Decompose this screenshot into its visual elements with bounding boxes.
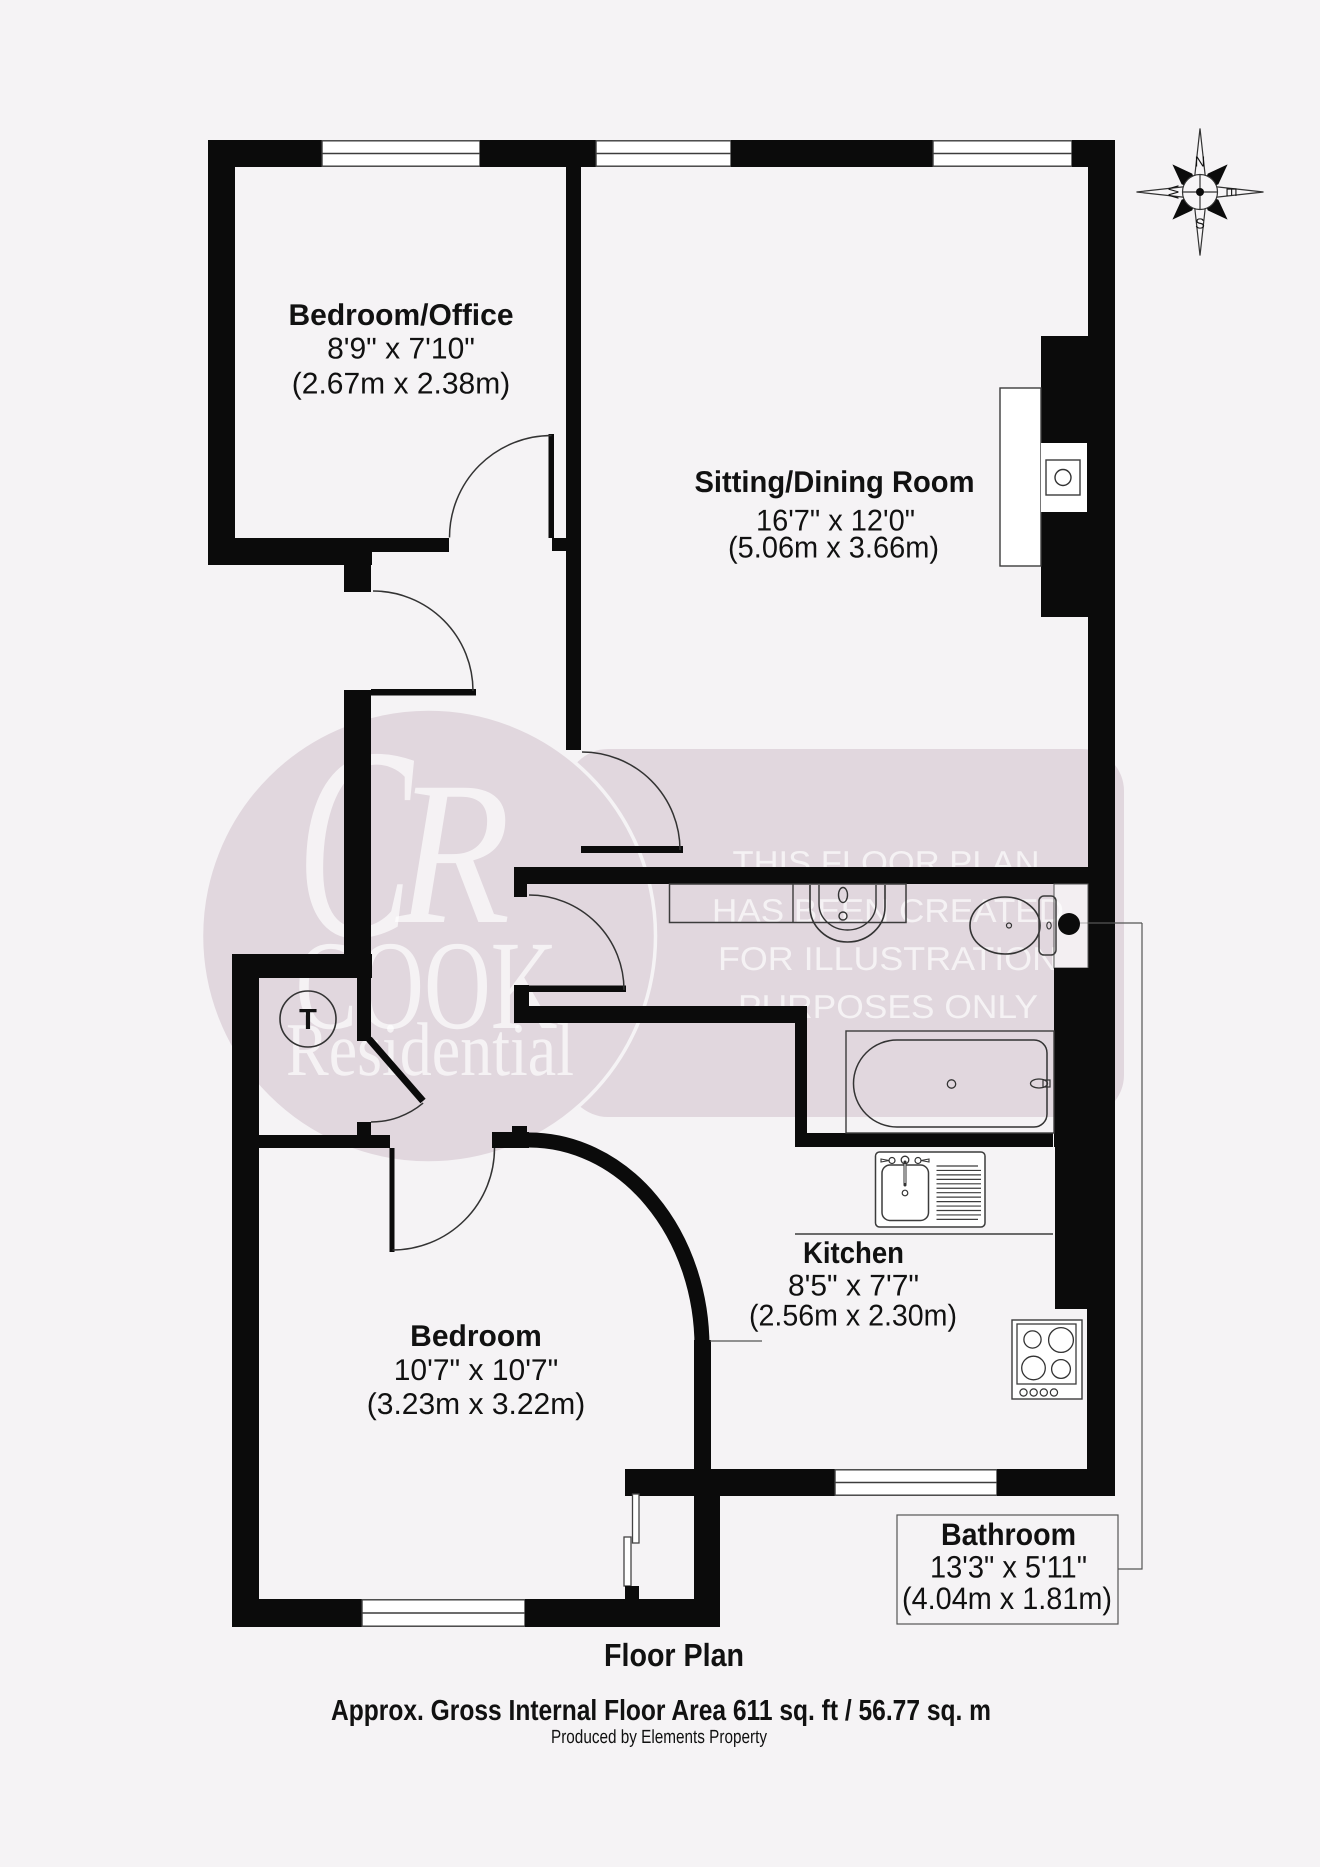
svg-text:Kitchen: Kitchen bbox=[803, 1237, 904, 1270]
svg-text:10'7" x 10'7": 10'7" x 10'7" bbox=[394, 1354, 559, 1387]
svg-text:Produced by Elements Property: Produced by Elements Property bbox=[551, 1727, 767, 1748]
svg-text:(2.67m x 2.38m): (2.67m x 2.38m) bbox=[292, 368, 510, 401]
svg-text:FOR ILLUSTRATION: FOR ILLUSTRATION bbox=[718, 940, 1058, 977]
svg-text:8'5" x 7'7": 8'5" x 7'7" bbox=[788, 1270, 919, 1303]
svg-text:Sitting/Dining Room: Sitting/Dining Room bbox=[695, 466, 975, 499]
svg-text:Approx. Gross Internal Floor A: Approx. Gross Internal Floor Area 611 sq… bbox=[331, 1695, 991, 1727]
svg-text:(2.56m x 2.30m): (2.56m x 2.30m) bbox=[749, 1300, 957, 1333]
svg-text:T: T bbox=[299, 1004, 317, 1036]
svg-text:(5.06m x 3.66m): (5.06m x 3.66m) bbox=[728, 532, 939, 565]
svg-text:W: W bbox=[1165, 185, 1181, 199]
svg-text:(3.23m x 3.22m): (3.23m x 3.22m) bbox=[367, 1388, 585, 1421]
svg-text:N: N bbox=[1195, 155, 1205, 171]
svg-text:Bathroom: Bathroom bbox=[941, 1517, 1076, 1552]
svg-text:8'9" x 7'10": 8'9" x 7'10" bbox=[327, 333, 475, 366]
svg-text:Bedroom/Office: Bedroom/Office bbox=[288, 299, 513, 332]
svg-text:Floor Plan: Floor Plan bbox=[604, 1637, 744, 1673]
svg-text:E: E bbox=[1223, 187, 1239, 197]
svg-text:13'3" x 5'11": 13'3" x 5'11" bbox=[930, 1550, 1087, 1585]
svg-text:S: S bbox=[1195, 217, 1205, 233]
svg-text:Bedroom: Bedroom bbox=[410, 1320, 542, 1353]
svg-text:(4.04m x 1.81m): (4.04m x 1.81m) bbox=[902, 1581, 1112, 1616]
